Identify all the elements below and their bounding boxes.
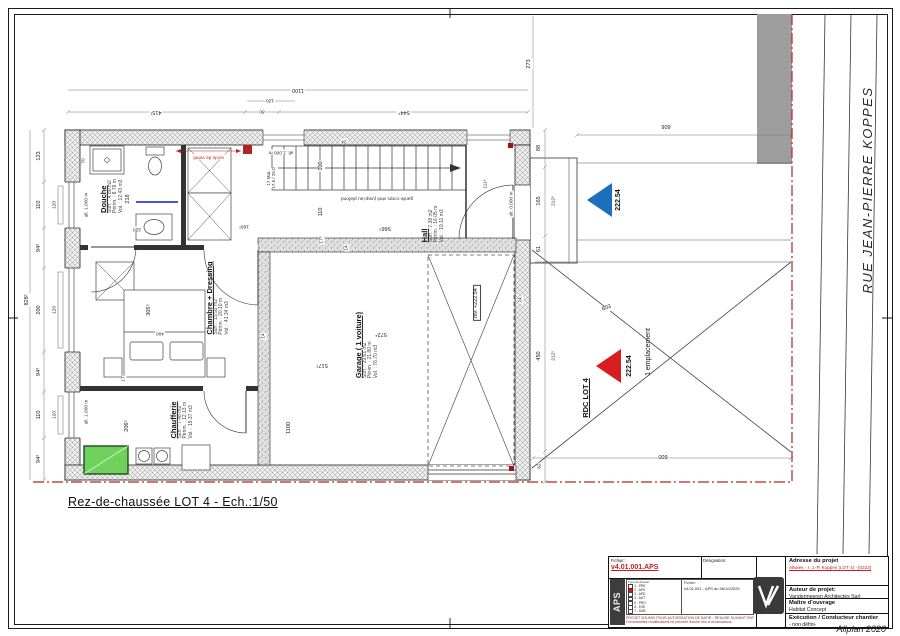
- legal-notes: PROJET SOUMIS POUR AUTORISATION DE BATIR…: [626, 616, 755, 625]
- room-label-chaufferie: Chaufferie Surf. : 7.48 m2 Périm. : 12.1…: [170, 401, 194, 438]
- dim: 61: [537, 245, 543, 253]
- entrance-alt-note: alt. 0.000 m: [509, 190, 514, 217]
- sill-note: all. 1.000 m: [84, 192, 89, 219]
- level-markers: [587, 183, 621, 383]
- dim: 110: [37, 200, 43, 211]
- dim: 517⁵: [315, 361, 328, 367]
- dossier-type: 7 - DAB: [634, 610, 645, 613]
- nightstand: [207, 358, 225, 377]
- dim: 62: [537, 462, 542, 469]
- dim: 110: [37, 410, 43, 421]
- address-label: Adresse du projet: [789, 558, 889, 564]
- dim: 566⁵: [378, 224, 391, 230]
- project-owner-row: Maître d'ouvrage Habitat Concept: [786, 598, 889, 613]
- entrance-walkway: [530, 158, 791, 263]
- architect-logo: [753, 577, 784, 614]
- dim: 212⁵: [551, 195, 556, 207]
- sill-note: all. 1.000 m: [268, 149, 295, 154]
- dim: 111⁵: [483, 178, 488, 189]
- level-triangle-red-icon: [596, 349, 621, 383]
- parking-level-value: 222.54: [626, 355, 634, 376]
- pillow: [130, 342, 163, 360]
- file-value: v4.01.001.APS: [611, 564, 699, 571]
- project-address-row: Adresse du projet Altwies - r. J.-P. Kop…: [786, 557, 889, 585]
- garage-level-tag: niv. +222.54: [473, 285, 481, 321]
- dim: 120: [52, 305, 57, 315]
- dim: 120: [52, 200, 57, 210]
- dim: 14: [344, 244, 349, 251]
- file-label: Fichier:: [684, 581, 751, 585]
- dim: 828²: [25, 293, 31, 306]
- dim: 70: [81, 157, 86, 164]
- designation-label: Désignation:: [703, 558, 755, 563]
- title-block: Fichier: v4.01.001.APS Désignation: APS …: [608, 556, 889, 628]
- dim: 600: [657, 452, 668, 458]
- entrance-level-value: 222.54: [615, 189, 623, 210]
- dim: 94³: [37, 243, 43, 253]
- corner-mark: [508, 143, 513, 148]
- dim: 120: [52, 410, 57, 420]
- va-logo-icon: [753, 577, 784, 614]
- dim: 220: [132, 226, 142, 231]
- lot-label: RDC LOT 4: [582, 378, 590, 418]
- project-author-row: Auteur de projet: Vandermeeren Architect…: [786, 585, 889, 598]
- author-label: Auteur de projet:: [789, 587, 889, 593]
- owner-label: Maître d'ouvrage: [789, 600, 889, 606]
- checkbox-icon: [628, 609, 633, 614]
- dossier-type-list: Type de dossier: 1 - PRE 2 - APS 3 - APD…: [626, 579, 682, 615]
- dim: 909: [660, 126, 671, 132]
- corner-mark: [509, 466, 514, 471]
- room-volume: Vol. : 12.43 m3: [119, 180, 124, 213]
- parking-space-lines: [532, 250, 791, 468]
- boiler: [182, 445, 210, 470]
- stair-direction-arrow: [450, 164, 461, 172]
- plan-linework: [0, 0, 900, 636]
- dim: 1100: [291, 86, 305, 92]
- file-revision-value: v4.01.001 - APS du 06/10/2025: [684, 586, 751, 591]
- dim: 305⁵: [147, 303, 153, 316]
- room-volume: Vol. : 76.70 m3: [374, 345, 379, 378]
- dim: 200: [37, 304, 43, 315]
- pillow: [170, 342, 203, 360]
- vent-base-note: socle de ventil.: [191, 154, 225, 159]
- parking-count-label: 1 emplacement: [645, 328, 653, 376]
- dim: 166⁵: [238, 223, 250, 228]
- address-value: Altwies - r. J.-P. Koppes (LOT 4) - [022…: [789, 565, 889, 570]
- wc-tank: [146, 147, 164, 155]
- stair-note: 17 Mar. 17.5 / 25.0: [267, 167, 277, 188]
- dim: 572⁴: [374, 330, 388, 336]
- neighbor-building: [757, 14, 792, 164]
- dim: 94³: [37, 367, 43, 377]
- dim: 94³: [37, 454, 43, 464]
- note-line: D'éventuelles modifications ne peuvent d…: [626, 620, 755, 624]
- dim: 17: [121, 375, 126, 382]
- stair-ratio: 17.5 / 25.0: [271, 167, 276, 188]
- dim: 206⁵: [125, 419, 131, 432]
- dossier-row: 7 - DAB: [628, 609, 681, 613]
- dim: 24: [518, 296, 523, 303]
- wc-bowl: [149, 157, 162, 175]
- dim: 544⁴: [397, 108, 411, 114]
- phase-vertical-label: APS: [612, 592, 622, 612]
- room-label-hall: Hall Surf. : 7.38 m2 Périm. : 16.05 m Vo…: [421, 206, 445, 243]
- dim: 24: [340, 138, 347, 143]
- owner-value: Habitat Concept: [789, 607, 889, 613]
- room-label-chambre: Chambre + Dressing Surf. : 15.92 m2 Péri…: [206, 261, 230, 334]
- dim: 17⁵: [319, 235, 324, 244]
- nightstand: [104, 358, 122, 377]
- dim: 123: [37, 150, 43, 161]
- dim: 400: [155, 330, 165, 335]
- guardrail-note: garde-corps vitré jusqu'au plafond: [340, 195, 414, 200]
- plan-title: Rez-de-chaussée LOT 4 - Ech.:1/50: [68, 496, 278, 510]
- dim: 100: [319, 160, 325, 171]
- dim: 88: [537, 144, 543, 152]
- car-space: [428, 255, 514, 466]
- execution-label: Exécution / Conducteur chantier: [789, 615, 889, 621]
- room-label-douche: Douche Surf. : 4.80 m2 Périm. : 8.76 m V…: [100, 179, 124, 213]
- staircase: [272, 146, 466, 190]
- room-label-garage: Garage ( 1 voiture) Surf. : 29.61 m2 Pér…: [355, 312, 379, 378]
- room-volume: Vol. : 41.34 m3: [225, 301, 230, 334]
- file-cell: Fichier: v4.01.001.APS: [611, 558, 699, 577]
- vent-base-mark: [243, 145, 252, 154]
- software-credit: Allplan 2020: [746, 624, 886, 634]
- room-volume: Vol. : 19.37 m3: [189, 405, 194, 438]
- dim: 110: [319, 207, 325, 218]
- divider: [701, 557, 702, 578]
- project-info-column: Adresse du projet Altwies - r. J.-P. Kop…: [785, 557, 889, 627]
- dim: 212¹: [551, 350, 556, 362]
- dim: 273: [527, 58, 533, 69]
- file-revision-cell: Fichier: v4.01.001 - APS du 06/10/2025: [682, 579, 754, 615]
- file-label: Fichier:: [611, 558, 699, 563]
- sill-note: all. 1.000 m: [84, 399, 89, 426]
- room-volume: Vol. : 19.11 m3: [440, 209, 445, 242]
- dim: 1100: [287, 421, 293, 435]
- drawing-sheet: Rez-de-chaussée LOT 4 - Ech.:1/50 RUE JE…: [0, 0, 900, 636]
- dim: 218: [126, 193, 132, 204]
- dim: 120: [265, 97, 275, 102]
- dim: 80: [258, 108, 265, 113]
- designation-cell: Désignation:: [703, 558, 755, 577]
- level-triangle-blue-icon: [587, 183, 612, 217]
- dim: 14: [261, 332, 266, 339]
- street-name: RUE JEAN-PIERRE KOPPES: [861, 86, 875, 293]
- dim: 450: [537, 350, 543, 361]
- dim: 165: [537, 195, 543, 206]
- dim: 415¹: [149, 108, 162, 114]
